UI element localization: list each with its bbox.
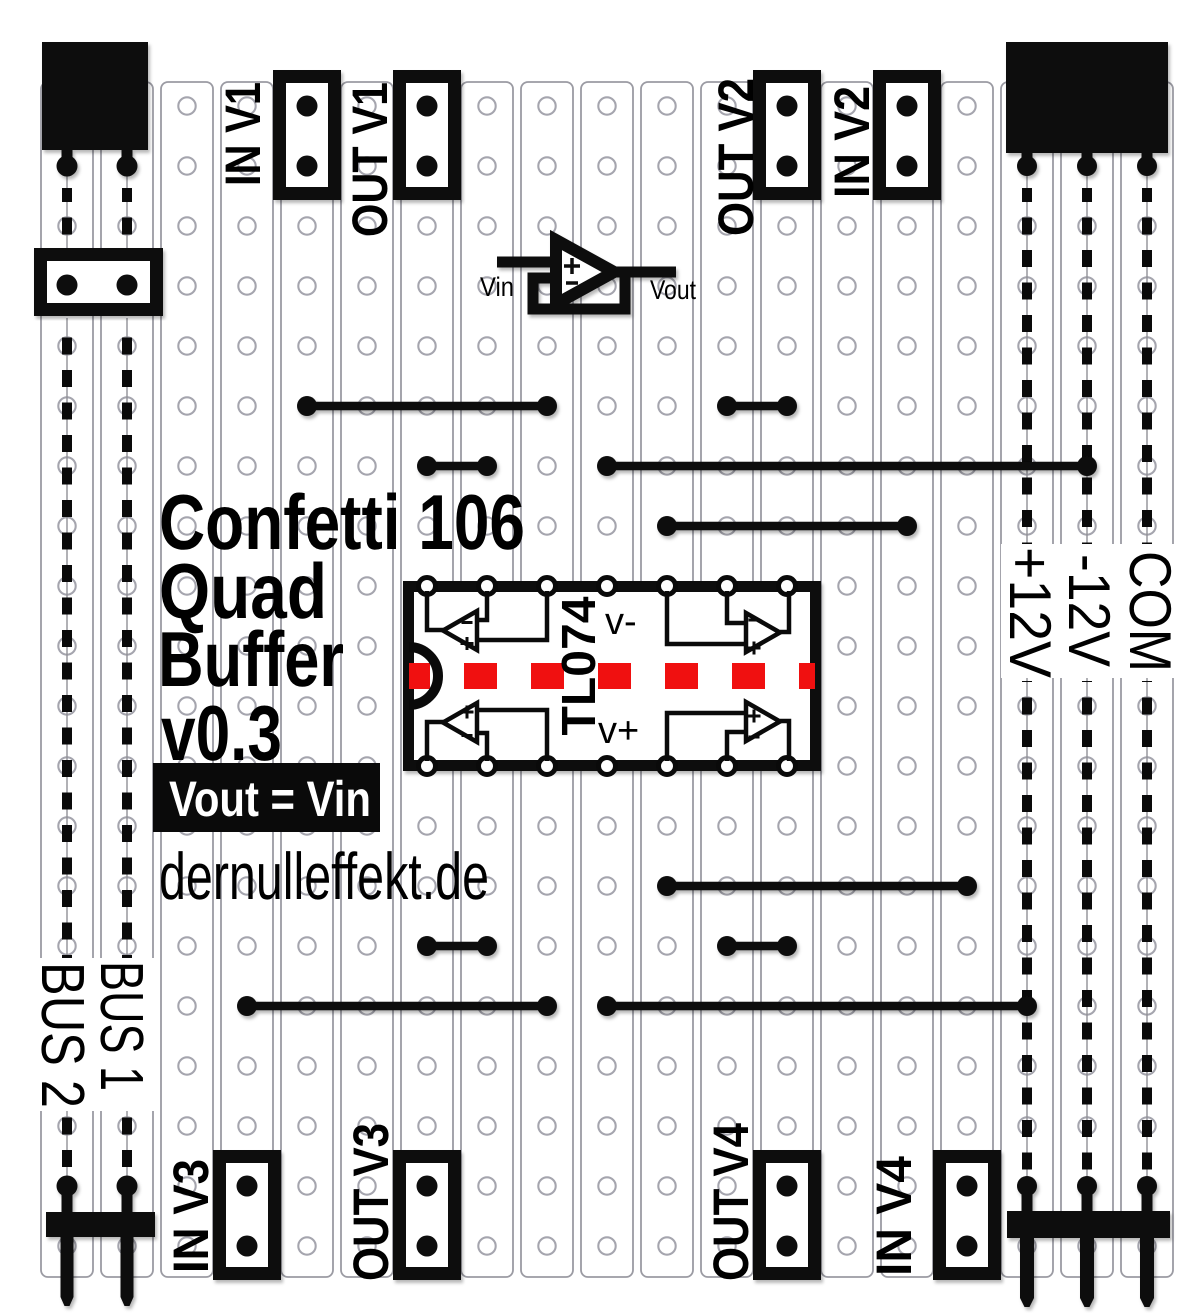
svg-text:IN V1: IN V1 xyxy=(215,82,271,186)
svg-text:OUT V3: OUT V3 xyxy=(343,1123,399,1281)
svg-text:COM: COM xyxy=(1117,551,1183,672)
svg-text:v-: v- xyxy=(605,601,637,643)
svg-text:BUS 2: BUS 2 xyxy=(29,962,97,1108)
svg-text:IN V3: IN V3 xyxy=(163,1159,219,1273)
svg-text:v+: v+ xyxy=(598,710,639,752)
svg-text:Vin: Vin xyxy=(480,272,514,302)
svg-text:+12V: +12V xyxy=(997,547,1063,679)
svg-text:IN V2: IN V2 xyxy=(824,86,880,198)
svg-text:Vout = Vin: Vout = Vin xyxy=(169,771,371,827)
svg-text:Vout: Vout xyxy=(650,275,696,305)
svg-text:OUT V4: OUT V4 xyxy=(703,1123,759,1281)
svg-text:-12V: -12V xyxy=(1056,554,1122,668)
svg-text:IN V4: IN V4 xyxy=(866,1156,922,1276)
svg-text:dernulleffekt.de: dernulleffekt.de xyxy=(159,839,489,913)
svg-text:OUT V2: OUT V2 xyxy=(708,78,764,236)
svg-text:BUS 1: BUS 1 xyxy=(88,961,156,1091)
svg-text:OUT V1: OUT V1 xyxy=(342,82,398,237)
